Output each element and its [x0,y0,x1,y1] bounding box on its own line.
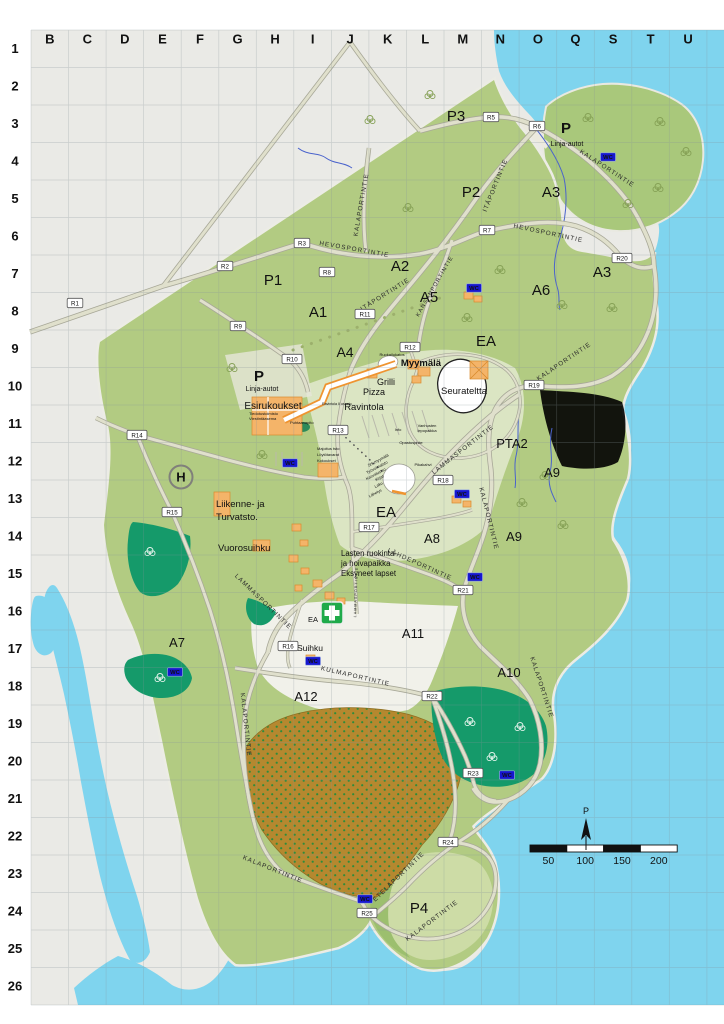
grid-row-label: 26 [8,979,22,994]
grid-row-label: 23 [8,866,22,881]
scale-bar-label: 150 [613,855,631,867]
gate-marker-label: R8 [323,269,331,276]
area-label: A2 [391,258,409,275]
wc-marker-label: WC [502,773,512,779]
wc-marker-label: WC [603,155,613,161]
grid-row-label: 8 [11,304,18,319]
area-label: A3 [593,264,611,281]
facility-label: Turvatsto. [216,512,258,523]
grid-column-label: G [232,32,242,47]
grid-row-label: 4 [11,154,19,169]
grid-column-label: H [270,32,279,47]
grid-row-label: 16 [8,604,22,619]
island [544,85,702,230]
area-label: P3 [447,108,465,125]
grid-row-label: 12 [8,454,22,469]
facility-label: Eksyneet lapset [341,569,397,578]
area-label: A4 [336,344,353,360]
gate-marker-label: R20 [616,255,628,262]
area-label: A9 [506,529,522,544]
wc-marker-label: WC [308,659,318,665]
grid-column-label: U [683,32,692,47]
facility-label: Vuorosuihku [218,543,270,554]
grid-row-label: 7 [11,266,18,281]
gate-marker-label: R18 [437,477,449,484]
grid-row-label: 6 [11,229,18,244]
gate-marker-label: R22 [426,693,438,700]
gate-marker-label: R13 [332,427,344,434]
grid-column-label: I [311,32,315,47]
area-label: A5 [420,289,438,306]
area-label: A3 [542,184,560,201]
wc-marker-label: WC [457,492,467,498]
gate-marker-label: R12 [404,344,416,351]
grid-row-label: 9 [11,341,18,356]
area-label: P1 [264,272,282,289]
grid-row-label: 21 [8,791,22,806]
gate-marker-label: R1 [71,300,79,307]
grid-column-label: J [347,32,354,47]
gate-marker-label: R25 [361,910,373,917]
grid-column-label: F [196,32,204,47]
area-label: P [561,120,571,137]
gate-marker-label: R16 [282,643,294,650]
grid-column-label: D [120,32,129,47]
gate-marker-label: R14 [131,432,143,439]
grid-row-label: 20 [8,754,22,769]
grid-column-label: M [457,32,468,47]
grid-column-label: C [83,32,93,47]
tiny-label: Ravintola II osasto [322,402,352,406]
facility-label: Seurateltta [441,386,488,397]
tiny-label: Opastuspiste [399,440,423,445]
grid-row-label: 13 [8,491,22,506]
tiny-label: lepopaikka [417,428,437,433]
grid-row-label: 24 [8,904,23,919]
facility-label: Pizza [363,387,385,397]
gate-marker-label: R6 [533,123,541,130]
area-label: A6 [532,282,550,299]
area-label: PTA2 [496,436,528,451]
gate-marker-label: R23 [467,770,479,777]
area-label: P [254,368,264,385]
area-label: P2 [462,184,480,201]
grid-column-label: T [647,32,655,47]
tiny-label: Viestintäasema [249,416,277,421]
area-label: EA [476,333,496,350]
grid-row-label: 1 [11,41,18,56]
area-label: A11 [402,626,424,641]
grid-column-label: E [158,32,167,47]
tiny-label: Majoitus tsto [317,446,340,451]
north-arrow-label: P [583,806,589,816]
area-label: A8 [424,531,440,546]
grid-column-label: L [421,32,429,47]
grid-row-label: 17 [8,641,22,656]
grid-column-label: O [533,32,543,47]
wc-marker-label: WC [170,670,180,676]
area-label: A9 [544,465,560,480]
grid-row-label: 19 [8,716,22,731]
scale-bar-label: 200 [650,855,668,867]
area-label: A12 [294,689,317,704]
grid-row-label: 25 [8,941,22,956]
grid-row-label: 2 [11,79,18,94]
campground-map: H BCDEFGHIJKLMNOQSTU12345678910111213141… [0,0,724,1024]
scale-bar-segment [567,845,604,852]
grid-column-label: N [496,32,505,47]
tiny-label: Puhtaanapito [290,420,314,425]
facility-label: Suihku [297,643,323,653]
grid-row-label: 3 [11,116,18,131]
gate-marker-label: R10 [286,356,298,363]
gate-marker-label: R17 [363,524,375,531]
scale-bar-segment [604,845,641,852]
grid-column-label: Q [570,32,580,47]
gate-marker-label: R9 [234,323,242,330]
gate-marker-label: R19 [528,382,540,389]
grid-row-label: 15 [8,566,22,581]
facility-label: EA [308,615,318,624]
facility-label: Myymälä [401,358,442,369]
facility-label: Grilli [377,377,395,387]
scale-bar-label: 100 [576,855,594,867]
tiny-label: Pikakahvi [414,462,431,467]
area-label: A1 [309,304,327,321]
scale-bar-segment [530,845,567,852]
grid-row-label: 22 [8,829,22,844]
facility-label: ja hoivapaikka [340,559,391,568]
facility-label: Liikenne- ja [216,499,265,510]
gate-marker-label: R11 [360,311,371,318]
facility-label: Linja-autot [551,141,584,148]
scale-bar-segment [640,845,677,852]
facility-label: Lasten ruokinta- [341,549,397,558]
area-label: EA [376,504,396,521]
scale-bar-label: 50 [543,855,555,867]
grid-column-label: K [383,32,393,47]
wc-marker-label: WC [469,286,479,292]
wc-marker-label: WC [360,897,370,903]
gate-marker-label: R7 [483,227,491,234]
gate-marker-label: R15 [166,509,178,516]
tiny-label: Kokoukset [317,458,337,463]
grid-column-label: B [45,32,54,47]
first-aid-icon [321,602,343,624]
area-label: A7 [169,635,185,650]
gate-marker-label: R3 [298,240,306,247]
grid-row-label: 10 [8,379,22,394]
gate-marker-label: R2 [221,263,229,270]
tiny-label: Ruokailukatos [379,352,404,357]
gate-marker-label: R21 [457,587,469,594]
grid-row-label: 14 [8,529,23,544]
grid-row-label: 5 [11,191,18,206]
service-tent [383,464,415,494]
wc-marker-label: WC [470,575,480,581]
wc-marker-label: WC [285,461,295,467]
grid-column-label: S [609,32,618,47]
tiny-label: Info [395,427,402,432]
grid-row-label: 18 [8,679,22,694]
gate-marker-label: R24 [442,839,454,846]
tiny-label: Löytötavarat [317,452,340,457]
facility-label: Linja-autot [246,386,279,393]
area-label: A10 [497,665,520,680]
map-page: H BCDEFGHIJKLMNOQSTU12345678910111213141… [0,0,724,1024]
gate-marker-label: R5 [487,114,495,121]
area-label: P4 [410,900,428,917]
grid-row-label: 11 [8,416,22,431]
